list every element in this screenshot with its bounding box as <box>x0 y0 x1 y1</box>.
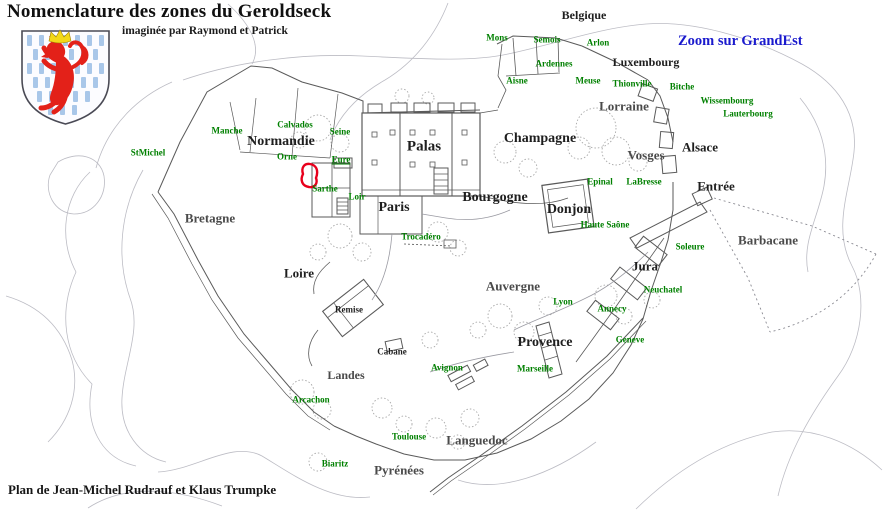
label-layer: BelgiqueLuxembourgLorraineNormandiePalas… <box>0 0 892 513</box>
zone-label-landes: Landes <box>327 369 364 381</box>
zone-label-luxembourg: Luxembourg <box>613 56 680 68</box>
zone-label-provence: Provence <box>518 336 573 350</box>
place-label-neuchatel: Neuchatel <box>644 286 683 295</box>
place-label-lauterbourg: Lauterbourg <box>723 110 773 119</box>
place-label-semois: Semois <box>534 36 561 45</box>
zone-label-normandie: Normandie <box>247 135 315 149</box>
place-label-stmichel: StMichel <box>131 149 166 158</box>
zone-label-paris: Paris <box>378 201 409 215</box>
zone-label-vosges: Vosges <box>627 149 664 162</box>
place-label-aisne: Aisne <box>506 77 528 86</box>
place-label-manche: Manche <box>212 127 243 136</box>
place-label-toulouse: Toulouse <box>392 433 426 442</box>
zone-label-bretagne: Bretagne <box>185 212 235 225</box>
zone-label-bourgogne: Bourgogne <box>462 191 527 205</box>
place-label-arlon: Arlon <box>587 39 610 48</box>
place-label-loir: Loir <box>349 193 366 202</box>
place-label-annecy: Annecy <box>598 305 627 314</box>
zone-label-loire: Loire <box>284 267 314 280</box>
zone-label-palas: Palas <box>407 140 441 155</box>
place-label-arcachon: Arcachon <box>292 396 329 405</box>
zone-label-jura: Jura <box>632 260 658 273</box>
place-label-bitche: Bitche <box>670 83 695 92</box>
zone-label-barbacane: Barbacane <box>738 234 798 247</box>
zone-label-belgique: Belgique <box>562 9 607 21</box>
place-label-calvados: Calvados <box>277 121 313 130</box>
place-label-biaritz: Biaritz <box>322 460 349 469</box>
place-label-wissembourg: Wissembourg <box>701 97 754 106</box>
place-label-eure: Eure <box>332 156 351 165</box>
place-label-soleure: Soleure <box>676 243 705 252</box>
place-label-geneve: Geneve <box>616 336 645 345</box>
place-label-lyon: Lyon <box>553 298 573 307</box>
zone-label-pyrenees: Pyrénées <box>374 464 424 477</box>
place-label-avignon: Avignon <box>431 364 463 373</box>
zone-label-cabane: Cabane <box>377 348 407 357</box>
place-label-meuse: Meuse <box>576 77 601 86</box>
geroldseck-map-page: Nomenclature des zones du Geroldseck ima… <box>0 0 892 513</box>
place-label-seine: Seine <box>330 128 351 137</box>
place-label-orne: Orne <box>277 153 297 162</box>
zone-label-donjon: Donjon <box>547 203 591 217</box>
place-label-haute-saone: Haute Saône <box>581 221 630 230</box>
place-label-marseille: Marseille <box>517 365 553 374</box>
zone-label-alsace: Alsace <box>682 141 718 154</box>
place-label-trocadero: Trocadéro <box>401 233 441 242</box>
zone-label-champagne: Champagne <box>504 132 576 146</box>
place-label-ardennes: Ardennes <box>535 60 572 69</box>
place-label-epinal: Epinal <box>587 178 613 187</box>
place-label-labresse: LaBresse <box>626 178 661 187</box>
zone-label-entree: Entrée <box>697 180 735 193</box>
place-label-thionville: Thionville <box>612 80 651 89</box>
zone-label-lorraine: Lorraine <box>599 100 649 113</box>
zone-label-remise: Remise <box>335 306 363 315</box>
zone-label-languedoc: Languedoc <box>446 434 507 447</box>
place-label-mons: Mons <box>486 34 508 43</box>
zone-label-auvergne: Auvergne <box>486 280 540 293</box>
place-label-sarthe: Sarthe <box>312 185 338 194</box>
